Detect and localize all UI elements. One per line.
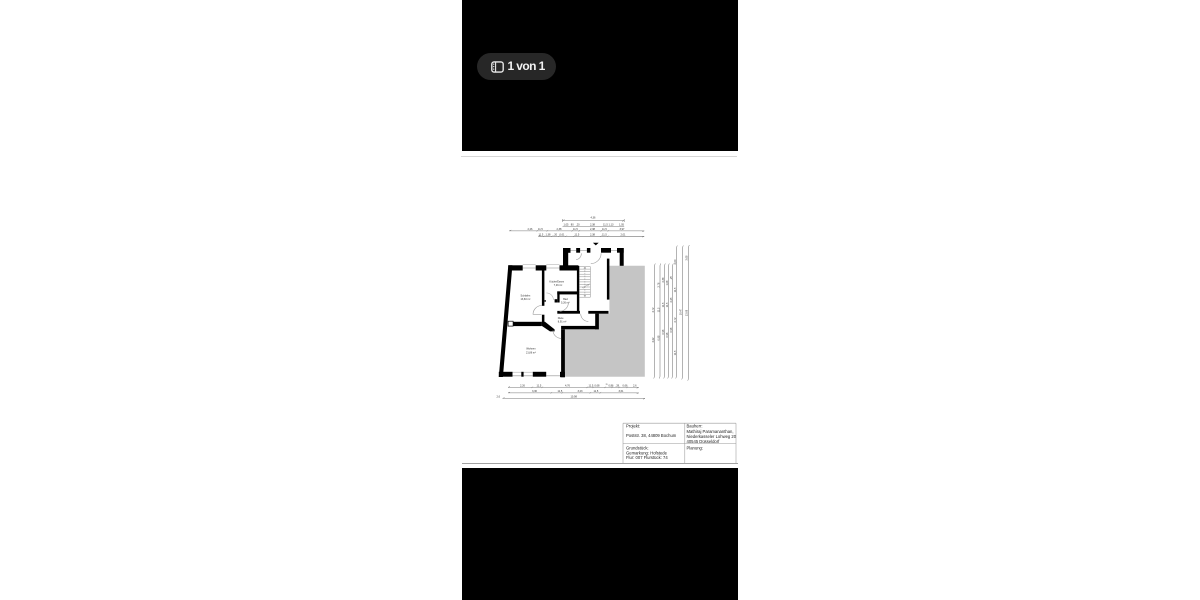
svg-text:11,5: 11,5 xyxy=(673,287,677,292)
svg-text:2,38: 2,38 xyxy=(590,227,596,231)
svg-text:0,61: 0,61 xyxy=(560,232,566,236)
svg-text:11,5: 11,5 xyxy=(539,232,544,236)
svg-text:11,5: 11,5 xyxy=(589,383,594,387)
svg-text:13,60 m²: 13,60 m² xyxy=(520,298,530,301)
svg-text:80: 80 xyxy=(571,223,574,227)
svg-text:11,5: 11,5 xyxy=(537,383,542,387)
svg-text:1,38: 1,38 xyxy=(546,232,552,236)
svg-text:0,66: 0,66 xyxy=(623,383,629,387)
svg-text:3,36: 3,36 xyxy=(532,389,538,393)
svg-text:2,6: 2,6 xyxy=(633,383,637,387)
svg-text:Schlafen: Schlafen xyxy=(521,294,531,297)
svg-text:,20: ,20 xyxy=(576,223,580,227)
svg-text:2,38: 2,38 xyxy=(557,227,563,231)
svg-text:Mathiraj Paramananthan,: Mathiraj Paramananthan, xyxy=(687,429,734,434)
svg-text:21,86 m²: 21,86 m² xyxy=(526,352,536,355)
svg-text:2,38: 2,38 xyxy=(590,232,596,236)
svg-text:Planung:: Planung: xyxy=(687,446,704,451)
svg-text:Flur: 007 Flurstück: 74: Flur: 007 Flurstück: 74 xyxy=(626,455,668,460)
svg-text:3,23: 3,23 xyxy=(578,389,584,393)
svg-text:40545 Düsseldorf: 40545 Düsseldorf xyxy=(687,439,721,444)
svg-text:Poststr. 38, 44809 Bochum: Poststr. 38, 44809 Bochum xyxy=(626,433,677,438)
svg-text:3,61: 3,61 xyxy=(619,389,625,393)
svg-text:4,36: 4,36 xyxy=(591,216,597,220)
svg-text:11,5: 11,5 xyxy=(558,389,563,393)
svg-text:2,00: 2,00 xyxy=(673,259,677,265)
svg-text:11,5: 11,5 xyxy=(538,227,543,231)
svg-text:1,05: 1,05 xyxy=(619,223,625,227)
svg-text:3,97: 3,97 xyxy=(620,227,626,231)
svg-text:2,72: 2,72 xyxy=(673,317,677,323)
svg-text:5,26 m²: 5,26 m² xyxy=(561,302,570,305)
svg-text:11,5: 11,5 xyxy=(573,227,578,231)
svg-text:7,46 m²: 7,46 m² xyxy=(554,284,563,287)
svg-text:2,38: 2,38 xyxy=(661,277,665,283)
svg-text:4,72: 4,72 xyxy=(651,307,655,313)
svg-text:3,68: 3,68 xyxy=(685,255,689,261)
svg-text:11,5: 11,5 xyxy=(661,302,665,307)
svg-text:11,5: 11,5 xyxy=(602,227,607,231)
svg-text:2,38: 2,38 xyxy=(590,223,596,227)
svg-text:2,6: 2,6 xyxy=(497,394,501,398)
svg-text:Wohnen: Wohnen xyxy=(526,347,536,350)
svg-text:2,25: 2,25 xyxy=(669,297,673,303)
svg-text:11,5: 11,5 xyxy=(575,232,580,236)
svg-text:,20: ,20 xyxy=(554,232,558,236)
svg-text:10,47: 10,47 xyxy=(679,308,683,315)
svg-text:11,5: 11,5 xyxy=(657,307,661,312)
svg-text:Projekt:: Projekt: xyxy=(626,424,640,429)
svg-text:1,13: 1,13 xyxy=(609,223,615,227)
svg-text:11,5: 11,5 xyxy=(594,389,599,393)
svg-text:1,08: 1,08 xyxy=(665,280,669,286)
svg-text:2,01: 2,01 xyxy=(621,232,627,236)
svg-text:2,26: 2,26 xyxy=(528,227,534,231)
svg-text:0,96: 0,96 xyxy=(669,327,673,333)
svg-text:70: 70 xyxy=(606,384,608,386)
svg-text:4,76: 4,76 xyxy=(565,383,571,387)
svg-text:8,91 m²: 8,91 m² xyxy=(558,321,567,324)
svg-text:Diele: Diele xyxy=(558,317,564,320)
svg-text:11,5: 11,5 xyxy=(602,232,607,236)
svg-text:2,76: 2,76 xyxy=(657,282,661,288)
svg-text:1,05: 1,05 xyxy=(564,223,570,227)
svg-text:4,22: 4,22 xyxy=(651,337,655,343)
svg-text:0,96: 0,96 xyxy=(665,332,669,338)
svg-text:11,5: 11,5 xyxy=(665,302,669,307)
svg-text:,28: ,28 xyxy=(616,383,620,387)
svg-text:11,5: 11,5 xyxy=(673,350,677,355)
svg-text:2,26: 2,26 xyxy=(520,383,526,387)
svg-text:0,68: 0,68 xyxy=(595,383,601,387)
svg-text:0,96: 0,96 xyxy=(661,329,665,335)
svg-text:13,08: 13,08 xyxy=(685,309,689,316)
svg-text:10,98: 10,98 xyxy=(571,394,578,398)
svg-text:0,98: 0,98 xyxy=(657,335,661,341)
svg-text:,25: ,25 xyxy=(669,276,673,280)
